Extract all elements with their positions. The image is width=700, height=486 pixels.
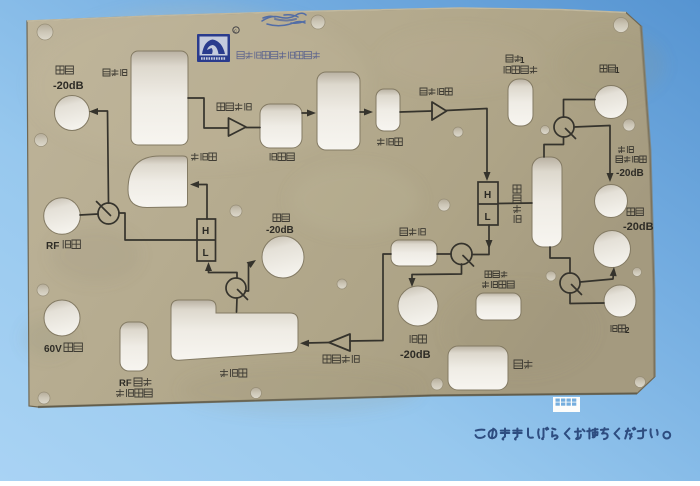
svg-text:RF: RF <box>119 378 132 389</box>
svg-text:RF: RF <box>46 241 59 252</box>
svg-text:-20dB: -20dB <box>400 349 431 361</box>
svg-text:H: H <box>202 226 209 237</box>
svg-text:1: 1 <box>520 56 525 65</box>
svg-text:-20dB: -20dB <box>53 80 84 92</box>
svg-text:L: L <box>485 212 491 223</box>
svg-text:-20dB: -20dB <box>616 168 644 179</box>
svg-text:-20dB: -20dB <box>623 221 654 233</box>
svg-text:-20dB: -20dB <box>266 225 294 236</box>
svg-text:60V: 60V <box>44 344 62 355</box>
svg-text:1: 1 <box>615 66 620 75</box>
svg-text:L: L <box>203 248 209 259</box>
svg-text:2: 2 <box>625 326 630 335</box>
svg-text:H: H <box>484 190 491 201</box>
